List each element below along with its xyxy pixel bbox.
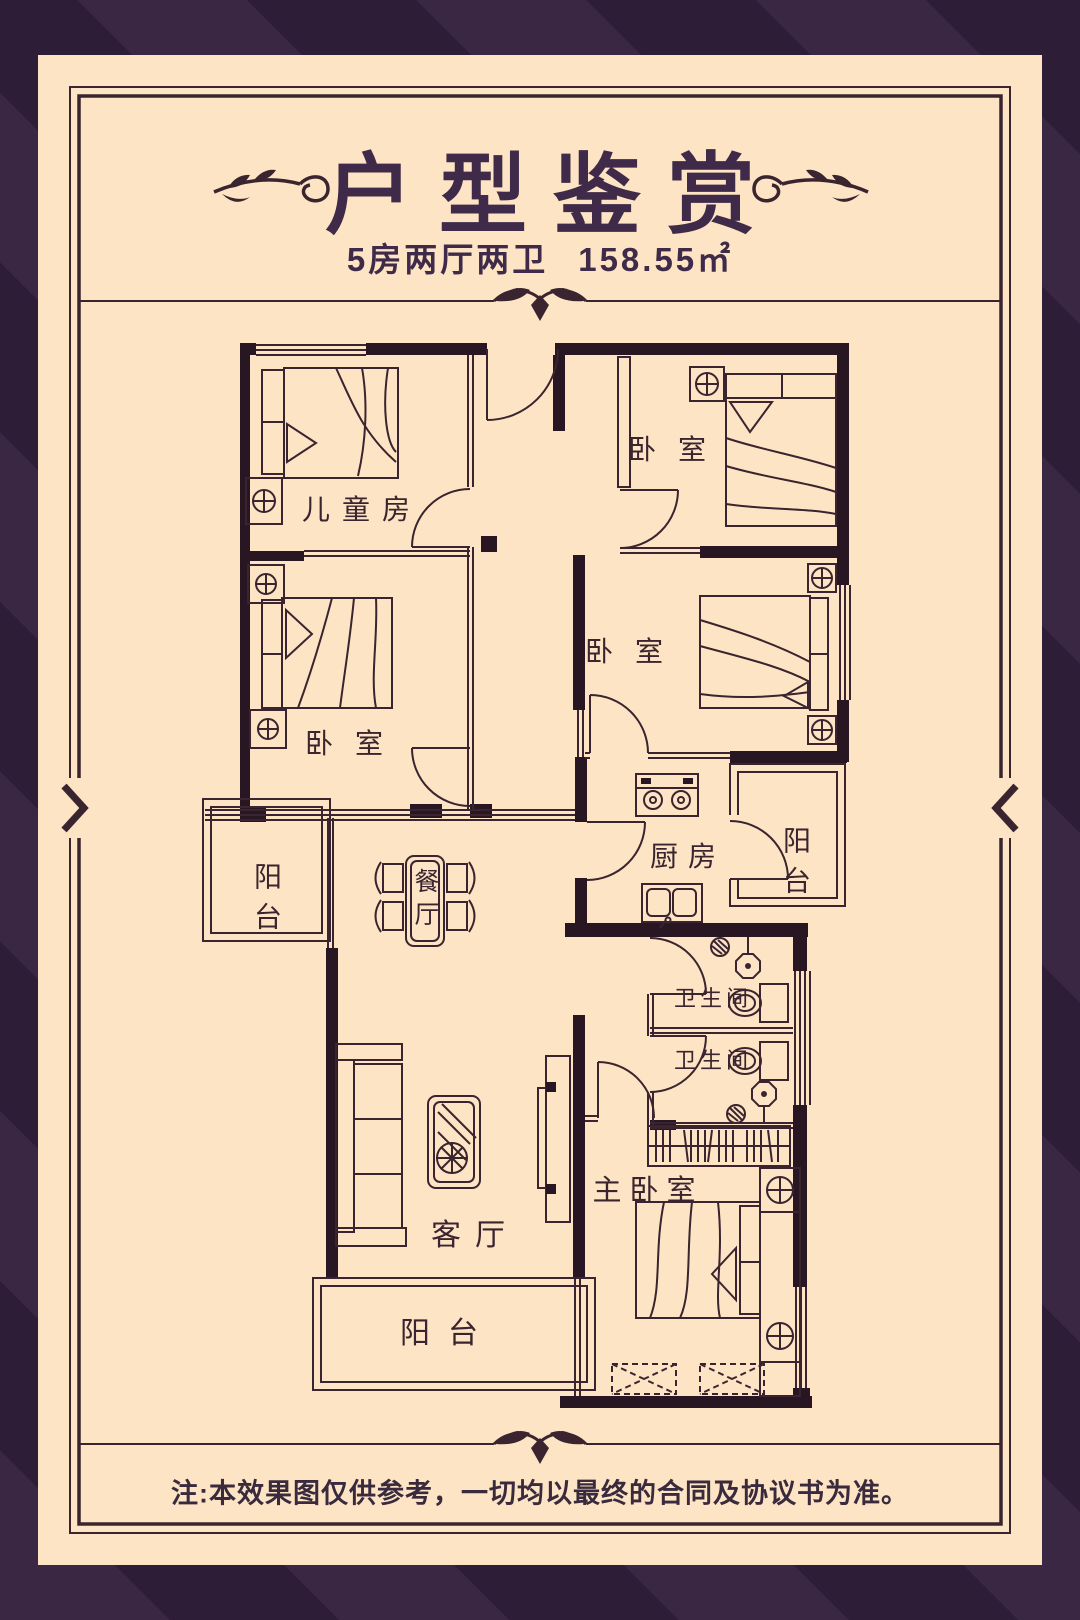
room-label-bedroom-mid-right: 卧室: [585, 630, 685, 670]
living-room-sofa: [336, 1044, 406, 1246]
room-label-dining: 餐厅: [407, 868, 443, 934]
room-label-living: 客厅: [431, 1210, 519, 1254]
bedroom-top-right-door: [620, 490, 678, 548]
kitchen-sink: [642, 884, 702, 928]
subtitle: 5房两厅两卫158.55㎡: [347, 233, 733, 281]
room-label-master-bedroom: 主卧室: [592, 1167, 703, 1209]
bedroom-mid-right-door: [590, 695, 648, 753]
entry-door: [487, 349, 558, 420]
bedroom-mid-left-bed: [248, 565, 392, 748]
room-label-bath-1: 卫生间: [674, 981, 752, 1013]
room-label-bedroom-mid-left: 卧室: [305, 722, 405, 762]
master-bedroom-door: [598, 1062, 654, 1118]
room-label-balcony-bottom: 阳台: [400, 1308, 496, 1352]
room-label-bath-2: 卫生间: [674, 1043, 752, 1075]
room-label-balcony-right: 阳台: [775, 826, 815, 906]
disclaimer-note: 注:本效果图仅供参考，一切均以最终的合同及协议书为准。: [171, 1472, 909, 1511]
floor-plan: [203, 343, 850, 1408]
kitchen-stove: [636, 774, 698, 816]
poster-background: 户型鉴赏 5房两厅两卫158.55㎡ 注:本效果图仅供参考，一切均以最终的合同及…: [0, 0, 1080, 1620]
subtitle-area: 158.55㎡: [578, 241, 733, 278]
bedroom-mid-left-door: [412, 748, 470, 806]
divider-bottom: [80, 1431, 1002, 1464]
room-label-kitchen: 厨房: [650, 835, 726, 875]
living-room-coffee-table: [428, 1096, 480, 1188]
ac-unit-boxes: [612, 1364, 764, 1394]
subtitle-layout: 5房两厅两卫: [347, 241, 548, 278]
room-label-balcony-left: 阳台: [246, 862, 286, 942]
room-label-kids-room: 儿童房: [302, 488, 422, 528]
living-room-tv: [538, 1056, 570, 1222]
kitchen-door: [587, 822, 645, 880]
divider-top: [80, 288, 1002, 321]
room-label-bedroom-top-right: 卧室: [628, 428, 728, 468]
bedroom-mid-right-bed: [700, 564, 836, 744]
